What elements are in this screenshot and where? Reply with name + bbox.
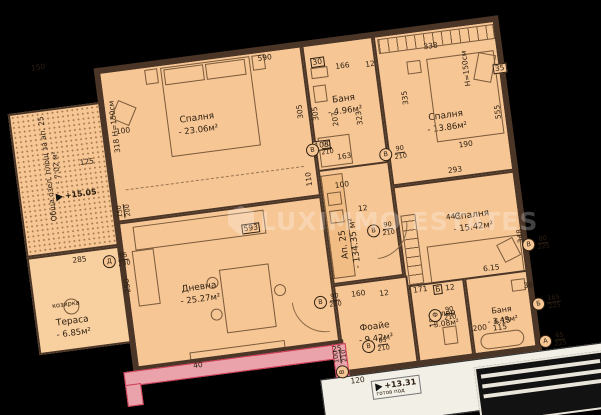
dimension-label: 40 [193, 361, 203, 370]
dimension-label: 6.15 [494, 316, 512, 326]
dimension-label: 160 [351, 289, 366, 298]
opening-label: А65225 [538, 331, 567, 348]
dimension-label: 555 [493, 104, 502, 119]
dimension-label: 171 [413, 285, 428, 294]
bath1-name: Баня [332, 93, 356, 106]
room-bedroom-2: Спалня - 13.86м² [373, 20, 515, 187]
dimension-label: 250 [123, 278, 132, 293]
dimension-label: 6.15 [483, 263, 501, 273]
ceiling-dash-line [126, 166, 305, 190]
opening-label: Ф90210 [428, 305, 457, 322]
opening-label: В90210 [313, 292, 342, 309]
dimension-label: 12 [358, 204, 368, 213]
opening-label: 150200 [116, 203, 132, 219]
dimension-label: 163 [337, 152, 352, 161]
opening-size: 90210 [381, 221, 395, 237]
opening-label: В80225 [521, 235, 550, 252]
opening-label: Д85230 [102, 251, 131, 268]
dining-table-icon [219, 263, 277, 333]
opening-letter: Ф [428, 308, 443, 323]
dimension-label: 285 [72, 255, 87, 264]
sofa-icon [132, 248, 161, 306]
apartment-plan: Обща озел. площ за ап. 25 - 7.02 м² Тера… [98, 20, 538, 399]
opening-label: В90210 [378, 144, 407, 161]
dimension-label: 207 [331, 112, 340, 127]
terrace-area: - 6.85м² [39, 324, 110, 344]
opening-label: В85210 [361, 336, 390, 353]
toilet-icon [442, 325, 458, 345]
opening-letter: В [335, 365, 350, 380]
pink-balcony-corner [125, 383, 144, 407]
terrace-label: Тераса - 6.85м² [37, 312, 109, 344]
dimension-label: 166 [335, 61, 350, 70]
opening-label: В90210 [366, 221, 395, 238]
dimension-label: 125 [79, 157, 94, 166]
opening-size: 100210 [332, 348, 348, 364]
opening-size: 90210 [320, 140, 334, 156]
green-line2: площ за ап. 25 [36, 116, 53, 175]
dimension-label: 443 [445, 212, 460, 221]
dimension-label: 35 [492, 63, 507, 74]
nightstand-icon [406, 60, 422, 75]
dimension-label: 12 [365, 60, 375, 69]
chair-icon [273, 283, 286, 296]
opening-letter: А [538, 334, 553, 349]
opening-size: 90210 [443, 305, 457, 321]
opening-size: 165225 [546, 294, 562, 310]
bedroom3-label: Спалня - 15.42м² [427, 205, 519, 239]
opening-label: В90210 [305, 140, 334, 157]
dimension-label: 338 [423, 41, 438, 50]
opening-size: 85210 [376, 336, 390, 352]
dimension-label: 200 [472, 323, 487, 332]
opening-size: 90210 [393, 144, 407, 160]
dimension-label: 100 [334, 180, 349, 189]
dimension-label: 12 [379, 289, 389, 298]
dimension-label: 12 [445, 283, 455, 292]
level-flag-icon [55, 192, 63, 201]
opening-label: В100210 [332, 348, 350, 379]
dimension-label: 335 [401, 90, 410, 105]
opening-size: 90210 [328, 292, 342, 308]
opening-size: 80225 [536, 235, 550, 251]
dimension-label: 323 [355, 110, 364, 125]
dimension-label: 100 [115, 126, 130, 135]
bath1-area: - 4.96м² [314, 102, 377, 121]
dimension-label: Б [433, 284, 443, 295]
room-bedroom-1: Спалня - 23.06м² [98, 45, 321, 222]
dimension-label: 110 [304, 172, 313, 187]
nightstand-icon [144, 68, 159, 85]
dimension-label: 590 [257, 53, 272, 62]
sink-icon [310, 66, 328, 79]
toilet-icon [313, 84, 328, 103]
dimension-label: 305 [311, 106, 320, 121]
dimension-label: 36 [523, 281, 533, 290]
opening-letter: В [305, 142, 320, 157]
dimension-label: 293 [447, 165, 462, 174]
dimension-label: 30 [310, 56, 325, 67]
common-green-label: Обща озел. площ за ап. 25 - 7.02 м² [36, 112, 69, 224]
opening-letter: В [313, 295, 328, 310]
opening-letter: Б [531, 296, 546, 311]
dimension-label: 190 [458, 140, 473, 149]
opening-label: Б165225 [531, 294, 562, 312]
opening-letter: В [366, 223, 381, 238]
dimension-label: 305 [295, 104, 304, 119]
opening-size: 150200 [116, 203, 132, 219]
floorplan-canvas: Обща озел. площ за ап. 25 - 7.02 м² Тера… [0, 0, 601, 415]
opening-size: 85230 [117, 251, 131, 267]
opening-letter: В [521, 237, 536, 252]
opening-size: 65225 [553, 331, 567, 347]
opening-letter: Д [102, 254, 117, 269]
dimension-label: 120 [350, 376, 365, 385]
opening-letter: В [361, 339, 376, 354]
chair-icon [210, 308, 223, 321]
opening-letter: В [378, 147, 393, 162]
dimension-label: 150 [30, 63, 45, 72]
